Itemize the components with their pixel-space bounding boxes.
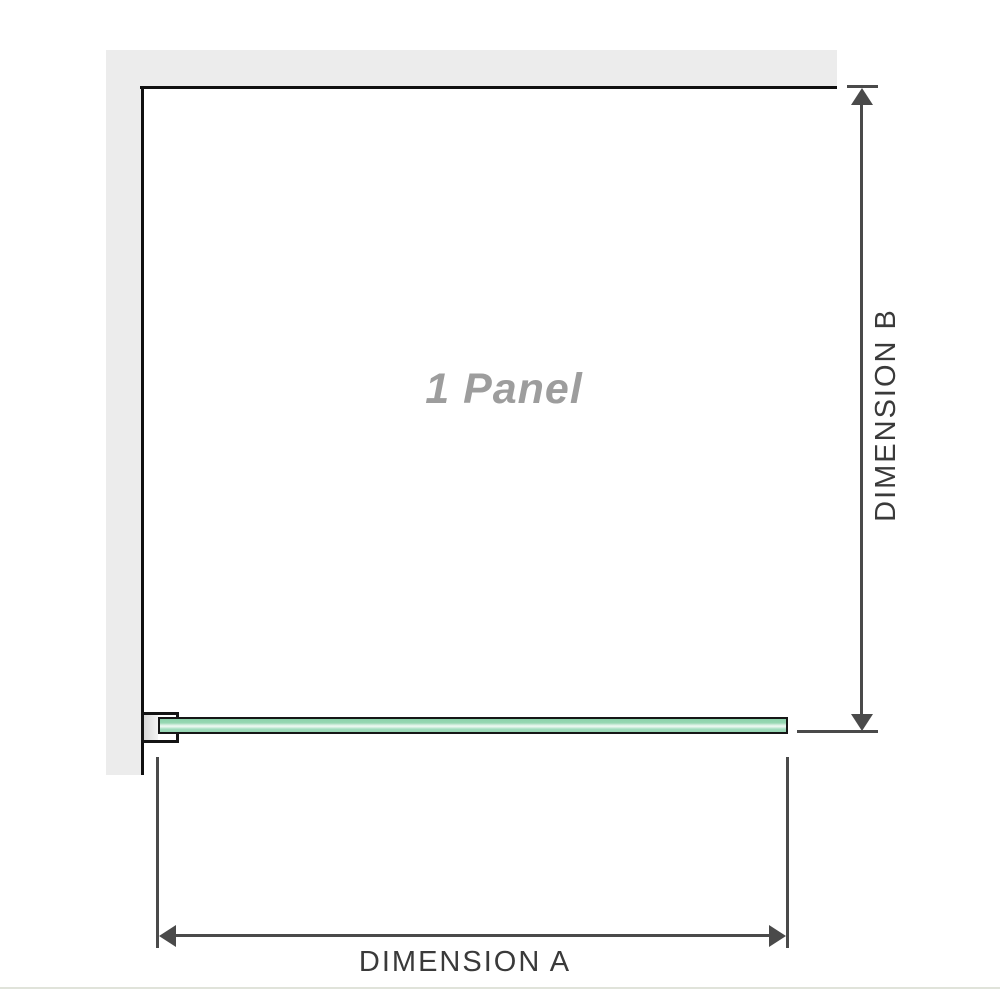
bracket-wall-pad <box>144 715 158 740</box>
dimension-b-arrowhead-down-icon <box>851 714 873 731</box>
panel-count-label: 1 Panel <box>404 366 604 413</box>
wall-top-band <box>106 50 837 86</box>
dimension-a-label: DIMENSION A <box>325 946 605 980</box>
dimension-a-extension-left <box>156 757 159 948</box>
panel-border-left <box>141 86 144 775</box>
page-edge-line <box>0 987 1000 989</box>
dimension-a-arrowhead-right-icon <box>769 925 786 947</box>
dimension-a-line <box>172 934 773 937</box>
dimension-a-arrowhead-left-icon <box>159 925 176 947</box>
dimension-b-arrowhead-up-icon <box>851 88 873 105</box>
dimension-b-line <box>860 99 863 719</box>
dimension-a-extension-right <box>786 757 789 948</box>
panel-border-top <box>140 86 837 89</box>
wall-left-band <box>106 50 142 775</box>
glass-panel-bar <box>158 717 788 734</box>
dimension-diagram: 1 Panel DIMENSION B DIMENSION A <box>0 0 1000 1000</box>
dimension-b-label: DIMENSION B <box>870 295 902 535</box>
